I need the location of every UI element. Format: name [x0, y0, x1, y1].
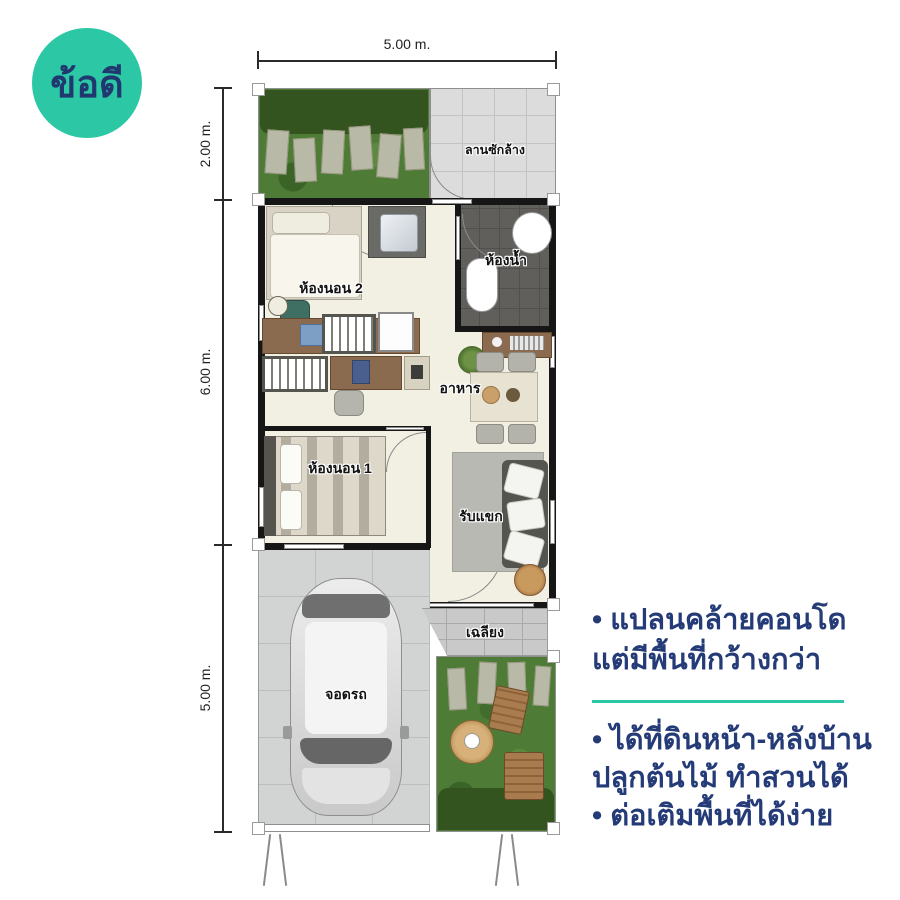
car-windshield — [300, 738, 392, 764]
note-3-line-1: • ต่อเติมพื้นที่ได้ง่าย — [592, 798, 833, 835]
stepping-stone — [447, 668, 467, 711]
dim-tick — [257, 51, 259, 69]
car-hood — [302, 768, 390, 804]
dining-chair — [508, 424, 536, 444]
post — [547, 650, 560, 663]
sliding-door-bedroom1 — [284, 544, 344, 549]
dining-chair — [476, 424, 504, 444]
house-wall-top — [258, 198, 556, 205]
stepping-stone — [321, 129, 345, 174]
dim-tick — [214, 544, 232, 546]
stepping-stone — [348, 125, 373, 170]
porch-label: เฉลียง — [430, 622, 540, 644]
dimension-depth1-label: 2.00 m. — [197, 121, 213, 168]
window-right-2 — [550, 500, 555, 544]
note-2-line-1: • ได้ที่ดินหน้า-หลังบ้าน — [592, 722, 872, 759]
bedroom1-label: ห้องนอน 1 — [280, 458, 400, 480]
note-1-line-2: แต่มีพื้นที่กว้างกว่า — [592, 642, 821, 679]
laundry-label: ลานซักล้าง — [440, 140, 550, 160]
stepping-stone — [533, 665, 552, 706]
wardrobe-a — [322, 314, 376, 354]
note-2-line-2: ปลูกต้นไม้ ทำสวนได้ — [592, 760, 849, 797]
dim-tick — [214, 199, 232, 201]
garden-bench — [504, 752, 544, 800]
badge-label: ข้อดี — [50, 53, 123, 114]
carport-gate-track — [258, 824, 430, 832]
bedroom2-label: ห้องนอน 2 — [266, 278, 396, 300]
gate-mark — [495, 834, 503, 886]
dim-tick — [214, 831, 232, 833]
bedroom1-door-gap — [386, 427, 424, 430]
post — [252, 822, 265, 835]
bed-1-headboard — [264, 436, 276, 536]
gate-mark — [263, 834, 271, 886]
bed-1-pillow — [280, 490, 302, 530]
plate — [506, 388, 520, 402]
dimension-depth3-label: 5.00 m. — [197, 665, 213, 712]
post — [252, 83, 265, 96]
desk-chair-gray — [334, 390, 364, 416]
stepping-stone — [376, 133, 402, 179]
bed-2-pillow — [272, 212, 330, 234]
dining-chair — [476, 352, 504, 372]
dish — [492, 337, 502, 347]
post — [547, 822, 560, 835]
gate-mark — [511, 834, 519, 886]
fridge — [378, 312, 414, 352]
car-mirror — [400, 726, 409, 739]
coffee-table — [514, 564, 546, 596]
back-garden-shrubs — [260, 90, 428, 134]
sliding-door-living — [424, 603, 534, 607]
post — [547, 193, 560, 206]
dim-tick — [214, 87, 232, 89]
advantages-badge: ข้อดี — [32, 28, 142, 138]
utensils — [510, 336, 544, 350]
parking-label: จอดรถ — [290, 684, 402, 706]
car-rear-window — [302, 594, 390, 618]
notes-divider — [592, 700, 844, 703]
note-1-line-1: • แปลนคล้ายคอนโด — [592, 602, 846, 639]
sideboard-detail — [411, 365, 423, 379]
dimension-width-label: 5.00 m. — [332, 36, 482, 52]
wardrobe-b — [262, 356, 328, 392]
dimension-line-top — [258, 60, 556, 62]
post — [547, 83, 560, 96]
post — [252, 538, 265, 551]
kitchen-sink — [380, 214, 418, 252]
stepping-stone — [293, 137, 317, 182]
bathroom-label: ห้องน้ำ — [456, 250, 556, 272]
living-label: รับแขก — [436, 506, 526, 528]
stepping-stone — [403, 128, 425, 171]
car-roof — [305, 622, 387, 734]
stepping-stone — [264, 129, 289, 174]
car-mirror — [283, 726, 292, 739]
dining-label: อาหาร — [424, 378, 496, 400]
dimension-depth2-label: 6.00 m. — [197, 349, 213, 396]
dining-chair — [508, 352, 536, 372]
dim-tick — [555, 51, 557, 69]
post — [547, 598, 560, 611]
bedroom1-side-wall — [426, 426, 431, 548]
book — [352, 360, 370, 384]
gate-mark — [279, 834, 287, 886]
garden-table-pot — [464, 733, 480, 749]
post — [252, 193, 265, 206]
bathroom-sink — [512, 212, 552, 254]
laundry-door — [432, 199, 472, 204]
